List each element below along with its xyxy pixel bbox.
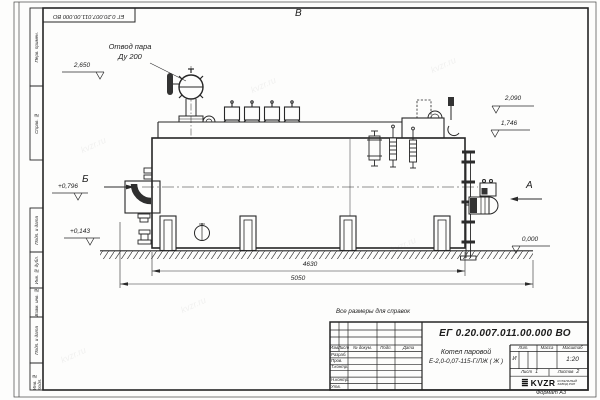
margin-cell-inv-dubl: Инв. № дубл.: [30, 252, 43, 288]
level-gauges: [367, 125, 417, 168]
col-list: Лист: [339, 346, 348, 350]
reference-note: Все размеры для справок: [336, 309, 410, 315]
view-marker-right: А: [526, 181, 533, 191]
elevation-right-lower: 1,746: [489, 121, 529, 128]
margin-cell-vzam-inv: Взам. инв. №: [30, 288, 43, 317]
col-podp: Подп.: [377, 346, 395, 350]
pump-unit: [465, 180, 498, 215]
margin-cell-perv-primen: Перв. примен.: [30, 8, 43, 86]
steam-outlet-label-line2: Ду 200: [98, 53, 162, 61]
ground-hatch: [100, 251, 533, 259]
row-n-kontr: Н.контр.: [331, 378, 349, 382]
view-marker-left: Б: [82, 175, 89, 185]
elevation-ground: 0,000: [510, 237, 550, 244]
top-hatches: [224, 101, 300, 122]
format-label: Формат А3: [516, 391, 586, 397]
col-dokum: № докум.: [348, 346, 377, 350]
sheet-cell: Лист 1: [510, 369, 549, 377]
row-prov: Пров.: [331, 359, 342, 363]
product-name-line2: Е-2,0-0,07-115-Г/ЛЖ ( Ж ): [422, 359, 510, 365]
dimension-overall-length: 5050: [276, 276, 320, 283]
margin-cell-podp-data-1: Подп. и дата: [30, 208, 43, 252]
row-t-kontr: Т.контр.: [331, 365, 348, 369]
drawing-sheet: kvzr.ru kvzr.ru kvzr.ru kvzr.ru kvzr.ru …: [0, 0, 600, 400]
lit-label: Лит.: [510, 346, 537, 350]
mass-label: Масса: [537, 346, 557, 350]
margin-cell-inv-podl: Инв. № подл.: [30, 363, 43, 390]
title-doc-number: ЕГ 0.20.007.011.00.000 ВО: [422, 323, 588, 344]
top-stamp-text: ЕГ 0.20.007.011.00.000 ВО: [53, 12, 124, 18]
right-fittings: [417, 97, 459, 136]
support-legs: [160, 216, 450, 251]
dimension-shell-length: 4630: [288, 262, 332, 269]
steam-outlet-label-line1: Отвод пара: [98, 43, 162, 51]
row-utv: Утв.: [331, 385, 341, 389]
scale-value: 1:20: [557, 351, 588, 368]
manhole: [195, 223, 210, 241]
elevation-right-upper: 2,090: [492, 96, 534, 103]
top-stamp: ЕГ 0.20.007.011.00.000 ВО: [43, 8, 135, 22]
kvzr-logo: ≣ KVZR КОТЕЛЬНЫЙ ЗАВОД РЭП: [510, 376, 588, 390]
elevation-valve-top: 2,650: [60, 63, 104, 70]
margin-cell-sprav-n: Справ. №: [30, 86, 43, 160]
kvzr-logo-text: KVZR: [531, 379, 556, 388]
burner-box: [125, 168, 160, 244]
row-razrab: Разраб.: [331, 353, 347, 357]
steam-valve: [167, 66, 203, 140]
boiler-body: [142, 118, 478, 248]
elevation-left-low: +0,143: [60, 229, 100, 236]
sheets-cell: Листов 2: [549, 369, 588, 377]
elevation-marks: [52, 72, 550, 253]
safety-dome: [203, 116, 215, 122]
kvzr-logo-icon: ≣: [521, 379, 529, 388]
col-data: Дата: [395, 346, 422, 350]
valve-handwheel: [167, 73, 173, 95]
lit-value: И: [510, 351, 519, 368]
scale-label: Масштаб: [557, 346, 588, 350]
kvzr-tagline: КОТЕЛЬНЫЙ ЗАВОД РЭП: [557, 380, 576, 387]
view-marker-top: В: [295, 9, 302, 19]
product-name-line1: Котел паровой: [422, 349, 510, 356]
margin-cell-podp-data-2: Подп. и дата: [30, 317, 43, 363]
